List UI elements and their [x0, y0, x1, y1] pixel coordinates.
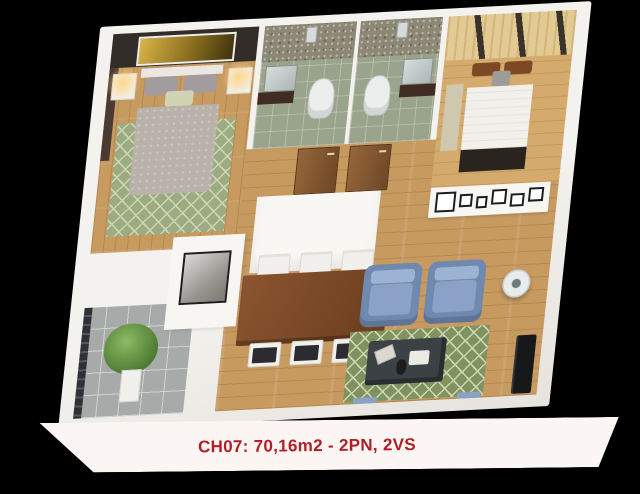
guest-duvet: [461, 84, 533, 150]
framed-artwork: [178, 250, 231, 305]
bedside-rug: [440, 84, 464, 151]
toilet: [307, 79, 335, 119]
photo-frame: [476, 196, 489, 209]
apartment-3d-render: [58, 1, 592, 432]
shower-fixture: [396, 22, 409, 39]
plan-base: CH07: 70,16m2 - 2PN, 2VS: [28, 417, 622, 473]
photo-frame: [491, 189, 507, 205]
guest-bed: [458, 56, 536, 174]
door-handle: [379, 150, 386, 152]
unit-caption: CH07: 70,16m2 - 2PN, 2VS: [28, 417, 622, 459]
floorplan-stage: CH07: 70,16m2 - 2PN, 2VS: [0, 0, 640, 494]
armchair-cushion: [368, 283, 413, 316]
dining-chair: [289, 340, 323, 366]
photo-frames: [428, 182, 551, 218]
armchair-backrest: [434, 265, 479, 280]
entry-art-wall: [164, 234, 246, 330]
sofa-edge: [457, 391, 482, 398]
throw-pillow: [164, 90, 194, 107]
door-handle: [327, 153, 334, 155]
photo-frame: [528, 187, 545, 202]
vanity-counter: [399, 83, 436, 97]
serving-tray: [408, 350, 429, 365]
bathroom-1-door: [293, 146, 340, 195]
headboard-wall: [110, 27, 259, 69]
bath-mirror: [401, 57, 434, 85]
master-duvet: [128, 104, 219, 196]
balcony-railing: [73, 308, 93, 419]
sofa-edge: [353, 397, 378, 404]
nightstand-left: [110, 73, 137, 100]
toilet: [363, 76, 391, 116]
chair-seat: [252, 347, 278, 363]
dining-chair: [247, 342, 281, 368]
armchair-cushion: [432, 280, 477, 313]
gray-cushion: [491, 70, 511, 86]
nightstand-right: [226, 67, 253, 94]
armchair-backrest: [370, 269, 415, 284]
book: [374, 344, 396, 365]
photo-frame: [509, 193, 524, 207]
gallery-wall: [428, 182, 551, 218]
bathroom-1: [252, 21, 357, 149]
armchair-left: [359, 262, 423, 327]
photo-frame: [434, 191, 456, 212]
foot-runner: [458, 147, 526, 173]
master-bed: [128, 64, 223, 195]
coffee-table: [365, 337, 448, 385]
vase: [395, 359, 407, 375]
bathroom-2: [348, 17, 443, 144]
chair-seat: [294, 345, 320, 361]
bathroom-2-door: [345, 144, 392, 193]
plant-planter: [118, 369, 141, 402]
wardrobe: [444, 10, 576, 61]
photo-frame: [459, 194, 473, 208]
gold-artwork: [136, 32, 237, 66]
vanity-counter: [257, 91, 294, 105]
bedroom-2: [431, 10, 577, 188]
shower-fixture: [305, 26, 318, 43]
armchair-right: [423, 259, 487, 324]
potted-plant-foliage: [101, 322, 160, 375]
master-bedroom: [90, 27, 259, 254]
bath-mirror: [263, 65, 298, 93]
